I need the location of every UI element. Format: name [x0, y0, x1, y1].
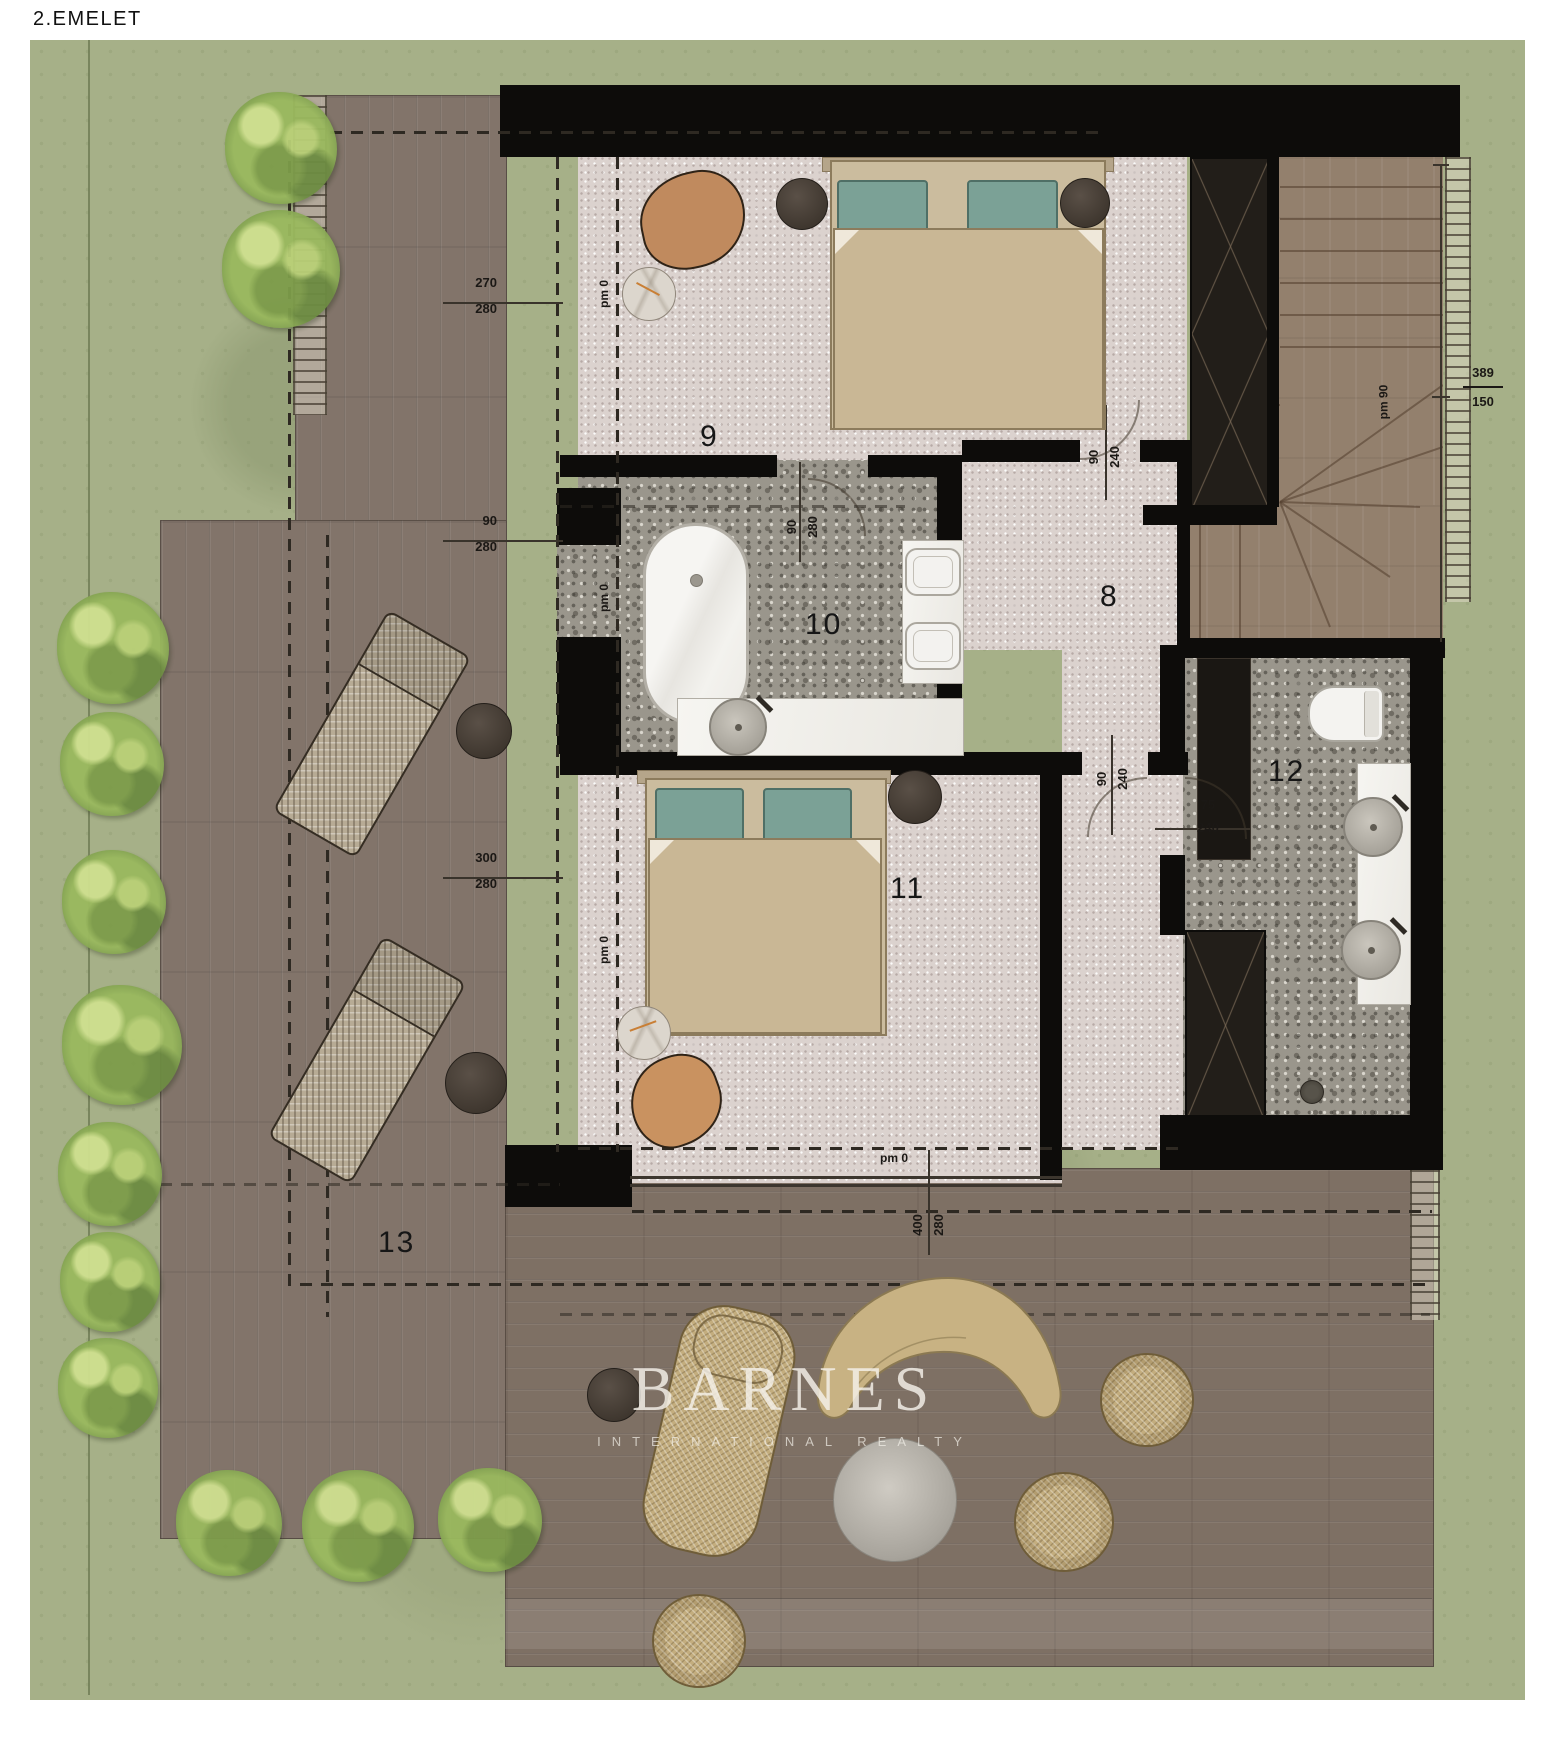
stone-coffee-table [833, 1438, 957, 1562]
bath12-sink-b [1341, 920, 1401, 980]
wall-pier-b [557, 637, 621, 754]
dim-300-280: 300280 [420, 851, 497, 890]
dim-75-240: 75240 [1180, 798, 1236, 834]
dash-pm-line [616, 157, 619, 1152]
tree [60, 1232, 160, 1332]
dash-glass-wall [556, 157, 559, 1152]
dim-90-280-left: 90280 [420, 514, 497, 553]
room-label-9: 9 [700, 420, 719, 454]
wall-stairs-bottom [1177, 638, 1445, 658]
tree [438, 1468, 542, 1572]
room-label-8: 8 [1100, 580, 1119, 614]
room11-stone-stool [617, 1006, 671, 1060]
watermark: BARNES INTERNATIONAL REALTY [545, 1352, 1025, 1449]
wardrobe-room12 [1185, 930, 1266, 1121]
floor-drain [1300, 1080, 1324, 1104]
hall8-floor-upper [962, 462, 1187, 650]
bed11-fold-left [650, 840, 674, 864]
pm0-bath10: pm 0 [598, 584, 610, 612]
floorplan-page: 9 10 8 11 12 13 270280 90280 300280 9028… [0, 0, 1565, 1754]
tub-drain [690, 574, 703, 587]
bath10-basin [709, 698, 767, 756]
wall-12-bottom [1160, 1115, 1443, 1170]
bed11-pillow-left [655, 788, 744, 845]
pouf-right [1100, 1353, 1194, 1447]
wall-11-bottom-pillar [505, 1145, 632, 1207]
bed9-blanket [833, 228, 1104, 430]
bath12-sink-a [1343, 797, 1403, 857]
bath10-window-sill [557, 545, 621, 637]
room-label-11: 11 [890, 872, 925, 906]
wall-9-hall-right [1140, 440, 1190, 462]
pouf-center [1014, 1472, 1114, 1572]
pm90-stairs: pm 90 [1377, 385, 1389, 420]
dim-90-280-door: 90280 [785, 495, 819, 559]
dim-90-240-mid: 90240 [1095, 747, 1129, 811]
wall-hall-11-left [962, 752, 1082, 775]
window-line-inner [630, 1184, 1062, 1187]
window-line-outer [630, 1176, 1062, 1179]
watermark-brand: BARNES [545, 1352, 1025, 1426]
bath10-sink-b [905, 622, 961, 670]
measure-389-line [1440, 165, 1442, 642]
wall-12-left-upper [1160, 645, 1185, 775]
dim-389-150: 389150 [1456, 366, 1510, 408]
lounger1-side-table [456, 703, 512, 759]
terrace-step-band [505, 1598, 1432, 1649]
wall-12-left-lower [1160, 855, 1185, 935]
stone-vein [630, 1020, 657, 1031]
wall-9-hall-left [962, 440, 1080, 462]
dim-270-280: 270280 [420, 276, 497, 315]
room-label-12: 12 [1268, 755, 1305, 789]
dash-bath-floor-edge [560, 505, 905, 508]
page-title: 2.EMELET [33, 8, 142, 31]
bathtub [643, 523, 749, 725]
wall-under-wardrobe [1143, 505, 1277, 525]
tree [302, 1470, 414, 1582]
wall-top-band [500, 85, 1460, 157]
stone-vein [636, 282, 660, 296]
bed11-fold-right [856, 840, 880, 864]
bed9-fold-left [835, 230, 859, 254]
dash-deck-h2 [632, 1210, 1432, 1213]
bed9-fold-right [1078, 230, 1102, 254]
bed11-blanket [648, 838, 882, 1034]
tree [58, 1122, 162, 1226]
pm0-room11: pm 0 [598, 936, 610, 964]
wall-hall-right [1177, 460, 1190, 640]
wall-9-10-left [560, 455, 777, 477]
tree [222, 210, 340, 328]
dim-divider [1463, 386, 1503, 388]
dim-90-240-top: 90240 [1087, 425, 1121, 489]
room-label-10: 10 [805, 608, 842, 642]
pm0-room9: pm 0 [598, 280, 610, 308]
tree [62, 850, 166, 954]
room9-stone-stool [622, 267, 676, 321]
wall-12-right [1410, 645, 1443, 1117]
tree [57, 592, 169, 704]
bath10-sink-a [905, 548, 961, 596]
pm0-bottom: pm 0 [880, 1152, 908, 1164]
wall-pier-a [557, 488, 621, 545]
dim-400-280: 400280 [911, 1193, 945, 1257]
measure-389-cap [1433, 164, 1449, 166]
tree [176, 1470, 282, 1576]
lounger2-side-table [445, 1052, 507, 1114]
dash-deck-v2 [326, 535, 329, 1317]
wardrobe-top [1190, 157, 1271, 511]
dash-balcony-top [330, 131, 1105, 134]
room-label-13: 13 [378, 1226, 415, 1260]
tree [58, 1338, 158, 1438]
tree [62, 985, 182, 1105]
bed11-pillow-right [763, 788, 852, 845]
tree [60, 712, 164, 816]
pouf-bottom [652, 1594, 746, 1688]
bed9-stool-left [776, 178, 828, 230]
terrace-railing-hatch [1410, 1170, 1440, 1320]
tree [225, 92, 337, 204]
watermark-tagline: INTERNATIONAL REALTY [545, 1434, 1025, 1449]
toilet [1308, 686, 1384, 742]
wall-11-right [1040, 775, 1062, 1180]
bed11-stool [888, 770, 942, 824]
bed9-stool-right [1060, 178, 1110, 228]
wall-stairs-left [1267, 157, 1279, 507]
measure-389-tick [1432, 396, 1450, 398]
dash-deck-h1 [160, 1183, 560, 1186]
